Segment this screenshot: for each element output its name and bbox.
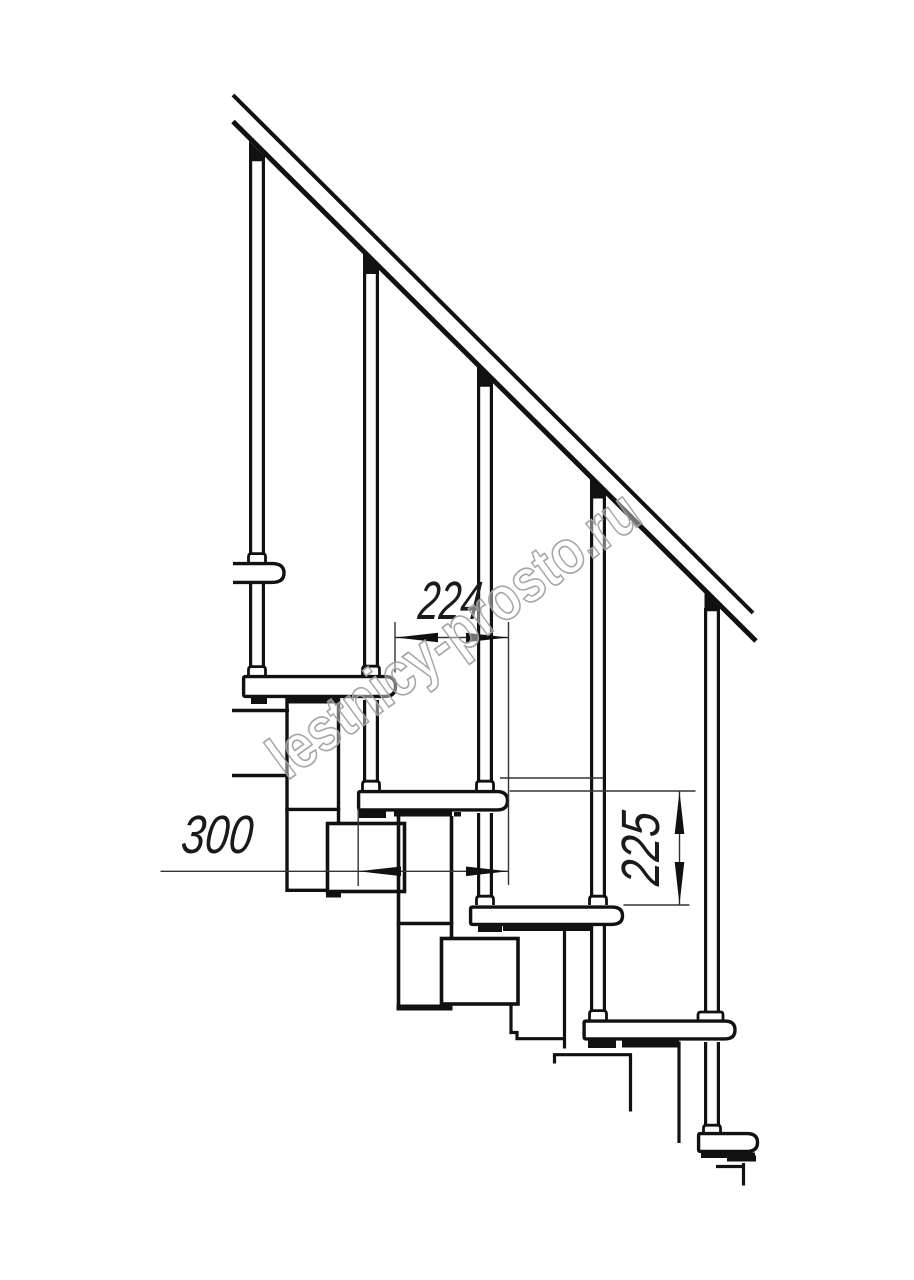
svg-text:225: 225	[611, 808, 671, 889]
svg-text:300: 300	[179, 805, 256, 865]
